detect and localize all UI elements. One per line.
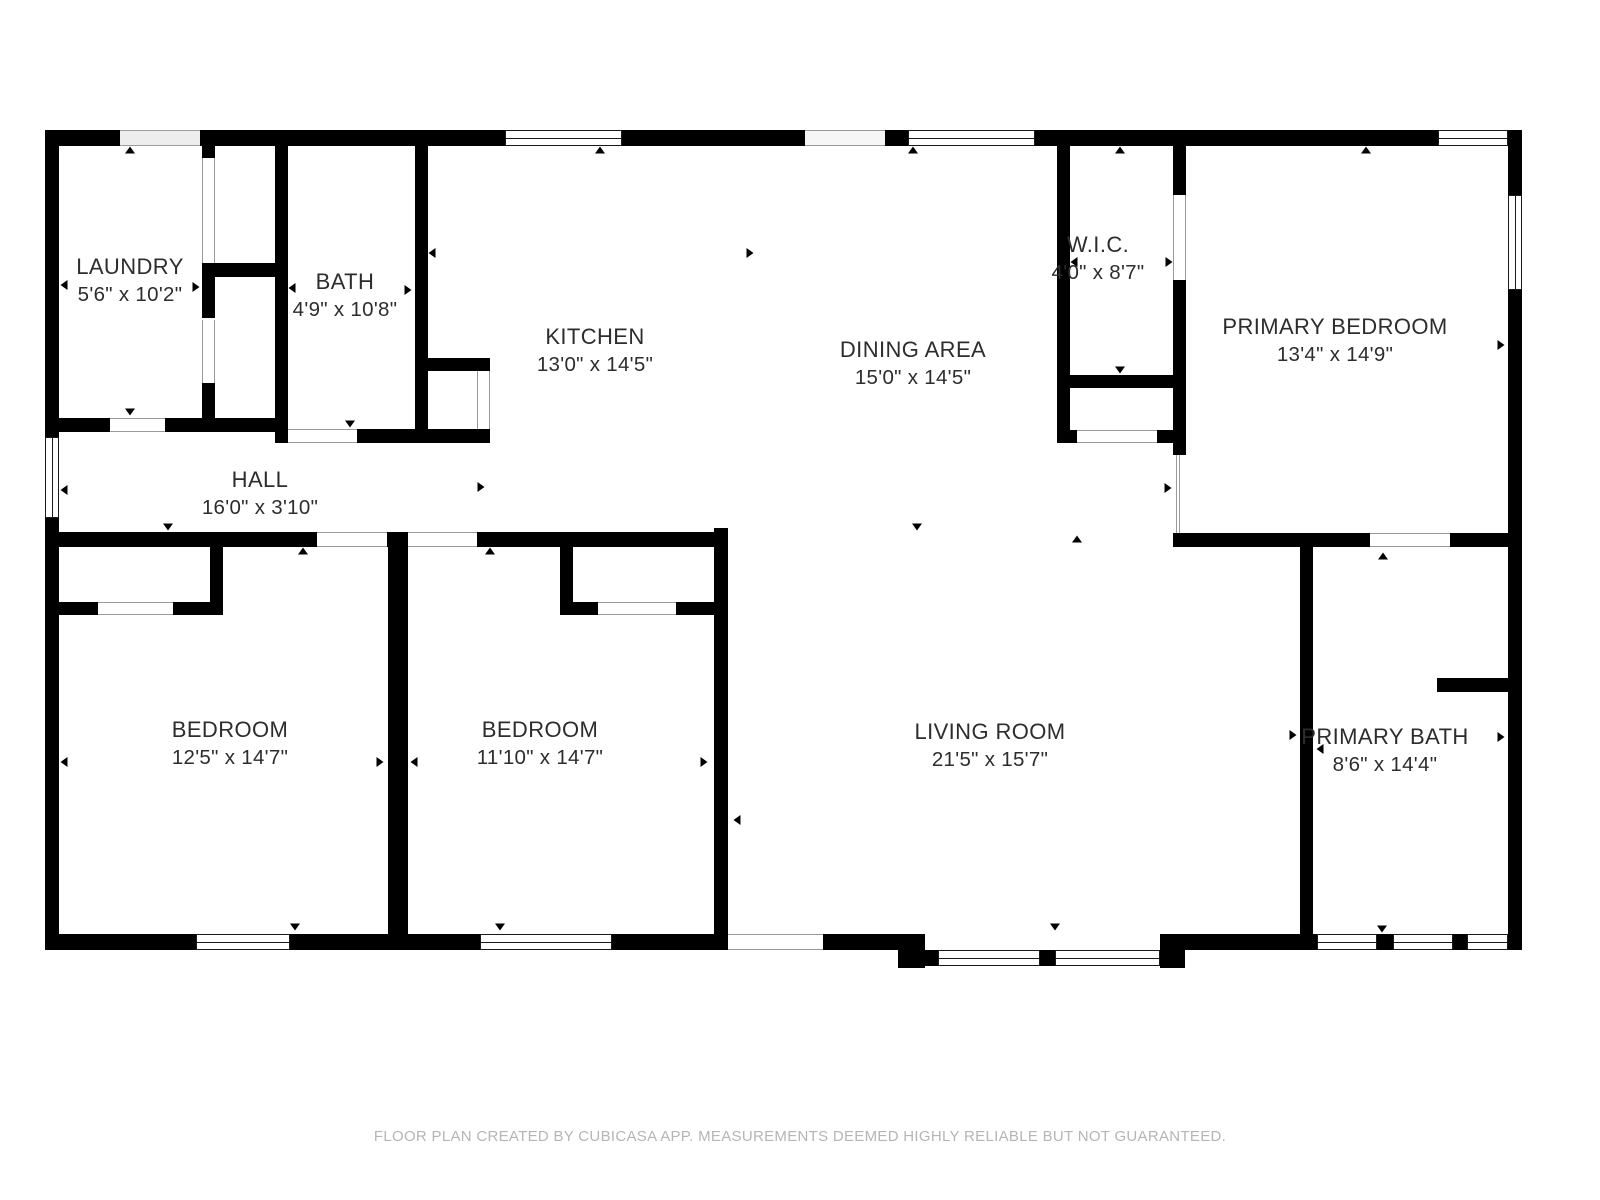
dimension-arrow-icon	[61, 485, 68, 495]
window-pane-line	[939, 958, 1039, 959]
dimension-arrow-icon	[912, 524, 922, 531]
room-dimensions: 5'6" x 10'2"	[76, 281, 184, 308]
window-icon	[1467, 934, 1508, 950]
dimension-arrow-icon	[701, 757, 708, 767]
dimension-arrow-icon	[1377, 926, 1387, 933]
window-pane-line	[1515, 196, 1516, 289]
window-pane-line	[481, 942, 611, 943]
door-opening	[110, 418, 165, 432]
wall-segment	[1437, 678, 1508, 692]
room-dimensions: 12'5" x 14'7"	[172, 744, 288, 771]
dimension-arrow-icon	[485, 548, 495, 555]
dimension-arrow-icon	[298, 548, 308, 555]
window-icon	[1393, 934, 1453, 950]
wall-segment	[898, 934, 925, 968]
dimension-arrow-icon	[1290, 730, 1297, 740]
wall-segment	[1508, 290, 1522, 950]
wall-segment	[925, 950, 938, 966]
room-label-laundry: LAUNDRY5'6" x 10'2"	[76, 252, 184, 308]
room-label-dining-area: DINING AREA15'0" x 14'5"	[840, 335, 986, 391]
wall-segment	[45, 934, 196, 950]
room-name: PRIMARY BATH	[1301, 722, 1468, 751]
wall-segment	[59, 418, 110, 432]
room-dimensions: 11'10" x 14'7"	[477, 744, 604, 771]
wall-segment	[45, 532, 317, 547]
wall-segment	[173, 602, 223, 615]
dimension-arrow-icon	[1498, 732, 1505, 742]
room-label-primary-bath: PRIMARY BATH8'6" x 14'4"	[1301, 722, 1468, 778]
window-pane-line	[506, 138, 621, 139]
room-dimensions: 13'0" x 14'5"	[537, 351, 653, 378]
dimension-arrow-icon	[411, 757, 418, 767]
window-icon	[505, 130, 622, 146]
dimension-arrow-icon	[193, 282, 200, 292]
door-opening	[1077, 430, 1157, 443]
dimension-arrow-icon	[125, 409, 135, 416]
wall-segment	[165, 418, 275, 432]
room-dimensions: 16'0" x 3'10"	[202, 494, 318, 521]
dimension-arrow-icon	[1165, 483, 1172, 493]
room-label-bedroom-2: BEDROOM11'10" x 14'7"	[477, 715, 604, 771]
wall-segment	[59, 602, 98, 615]
room-label-hall: HALL16'0" x 3'10"	[202, 465, 318, 521]
dimension-arrow-icon	[908, 147, 918, 154]
window-icon	[1438, 130, 1508, 146]
dimension-arrow-icon	[478, 482, 485, 492]
room-name: DINING AREA	[840, 335, 986, 364]
dimension-arrow-icon	[747, 248, 754, 258]
window-icon	[1055, 950, 1160, 966]
room-dimensions: 13'4" x 14'9"	[1222, 341, 1447, 368]
wall-segment	[477, 532, 714, 547]
door-opening	[202, 320, 215, 383]
room-name: KITCHEN	[537, 322, 653, 351]
window-icon	[1508, 195, 1522, 290]
room-name: LAUNDRY	[76, 252, 184, 281]
wall-segment	[714, 528, 728, 950]
dimension-arrow-icon	[1115, 147, 1125, 154]
wall-segment	[275, 146, 288, 443]
wall-segment	[1035, 130, 1438, 146]
door-opening	[598, 602, 676, 615]
dimension-arrow-icon	[1115, 367, 1125, 374]
wall-segment	[1040, 950, 1055, 966]
room-name: BATH	[293, 267, 398, 296]
dimension-arrow-icon	[734, 815, 741, 825]
dimension-arrow-icon	[1166, 257, 1173, 267]
wall-segment	[1160, 934, 1185, 968]
dimension-arrow-icon	[1050, 924, 1060, 931]
wall-segment	[885, 130, 908, 146]
dimension-arrow-icon	[405, 285, 412, 295]
room-label-wic: W.I.C.4'0" x 8'7"	[1052, 230, 1145, 286]
wall-segment	[290, 934, 480, 950]
door-opening	[1173, 195, 1186, 280]
room-label-living-room: LIVING ROOM21'5" x 15'7"	[914, 717, 1065, 773]
dimension-arrow-icon	[125, 147, 135, 154]
window-icon	[908, 130, 1035, 146]
wall-segment	[1173, 280, 1186, 455]
room-name: PRIMARY BEDROOM	[1222, 312, 1447, 341]
wall-segment	[388, 532, 408, 950]
wall-segment	[428, 358, 490, 371]
dimension-arrow-icon	[163, 524, 173, 531]
wall-segment	[1173, 146, 1186, 195]
window-pane-line	[909, 138, 1034, 139]
window-icon	[196, 934, 290, 950]
room-label-bedroom-1: BEDROOM12'5" x 14'7"	[172, 715, 288, 771]
floor-plan: LAUNDRY5'6" x 10'2"BATH4'9" x 10'8"KITCH…	[0, 0, 1600, 1200]
door-opening	[728, 934, 823, 950]
room-dimensions: 21'5" x 15'7"	[914, 746, 1065, 773]
window-icon	[45, 437, 59, 518]
dimension-arrow-icon	[1498, 340, 1505, 350]
door-opening	[202, 158, 215, 263]
dimension-arrow-icon	[290, 924, 300, 931]
room-name: W.I.C.	[1052, 230, 1145, 259]
room-dimensions: 4'9" x 10'8"	[293, 296, 398, 323]
room-name: BEDROOM	[172, 715, 288, 744]
dimension-arrow-icon	[1072, 536, 1082, 543]
room-label-bath: BATH4'9" x 10'8"	[293, 267, 398, 323]
wall-segment	[415, 146, 428, 443]
wall-segment	[676, 602, 714, 615]
wall-segment	[1057, 375, 1186, 388]
room-dimensions: 4'0" x 8'7"	[1052, 259, 1145, 286]
wall-segment	[1157, 430, 1186, 443]
dimension-arrow-icon	[1357, 536, 1367, 543]
window-pane-line	[52, 438, 53, 517]
room-name: HALL	[202, 465, 318, 494]
window-pane-line	[1468, 942, 1507, 943]
wall-segment	[1057, 430, 1077, 443]
door-opening	[120, 130, 200, 146]
door-opening	[408, 532, 477, 547]
dimension-arrow-icon	[495, 924, 505, 931]
dimension-arrow-icon	[1378, 553, 1388, 560]
room-dimensions: 8'6" x 14'4"	[1301, 751, 1468, 778]
dimension-arrow-icon	[377, 757, 384, 767]
wall-segment	[45, 518, 59, 950]
door-opening	[477, 371, 490, 429]
window-icon	[1317, 934, 1377, 950]
wall-segment	[1377, 934, 1393, 950]
room-name: LIVING ROOM	[914, 717, 1065, 746]
wall-segment	[45, 130, 59, 437]
footer-disclaimer: FLOOR PLAN CREATED BY CUBICASA APP. MEAS…	[0, 1128, 1600, 1145]
wall-segment	[560, 602, 598, 615]
door-opening	[317, 532, 387, 547]
window-pane-line	[197, 942, 289, 943]
door-opening	[1370, 533, 1450, 547]
window-pane-line	[1439, 138, 1507, 139]
window-pane-line	[1318, 942, 1376, 943]
wall-segment	[1453, 934, 1467, 950]
wall-segment	[1173, 533, 1370, 547]
dimension-arrow-icon	[345, 421, 355, 428]
door-opening	[805, 130, 885, 146]
wall-segment	[1185, 934, 1317, 950]
wall-segment	[1508, 130, 1522, 195]
room-name: BEDROOM	[477, 715, 604, 744]
dimension-arrow-icon	[595, 147, 605, 154]
dimension-arrow-icon	[1361, 147, 1371, 154]
room-dimensions: 15'0" x 14'5"	[840, 364, 986, 391]
wall-segment	[622, 130, 805, 146]
window-icon	[480, 934, 612, 950]
dimension-arrow-icon	[61, 757, 68, 767]
window-icon	[938, 950, 1040, 966]
door-opening	[1176, 455, 1180, 533]
dimension-arrow-icon	[61, 280, 68, 290]
window-pane-line	[1056, 958, 1159, 959]
window-pane-line	[1394, 942, 1452, 943]
wall-segment	[202, 146, 215, 158]
wall-segment	[612, 934, 728, 950]
room-label-primary-bedroom: PRIMARY BEDROOM13'4" x 14'9"	[1222, 312, 1447, 368]
door-opening	[98, 602, 173, 615]
door-opening	[288, 429, 357, 443]
dimension-arrow-icon	[429, 248, 436, 258]
wall-segment	[200, 130, 505, 146]
wall-segment	[1057, 146, 1070, 443]
room-label-kitchen: KITCHEN13'0" x 14'5"	[537, 322, 653, 378]
wall-segment	[202, 263, 215, 318]
wall-segment	[1450, 533, 1508, 547]
